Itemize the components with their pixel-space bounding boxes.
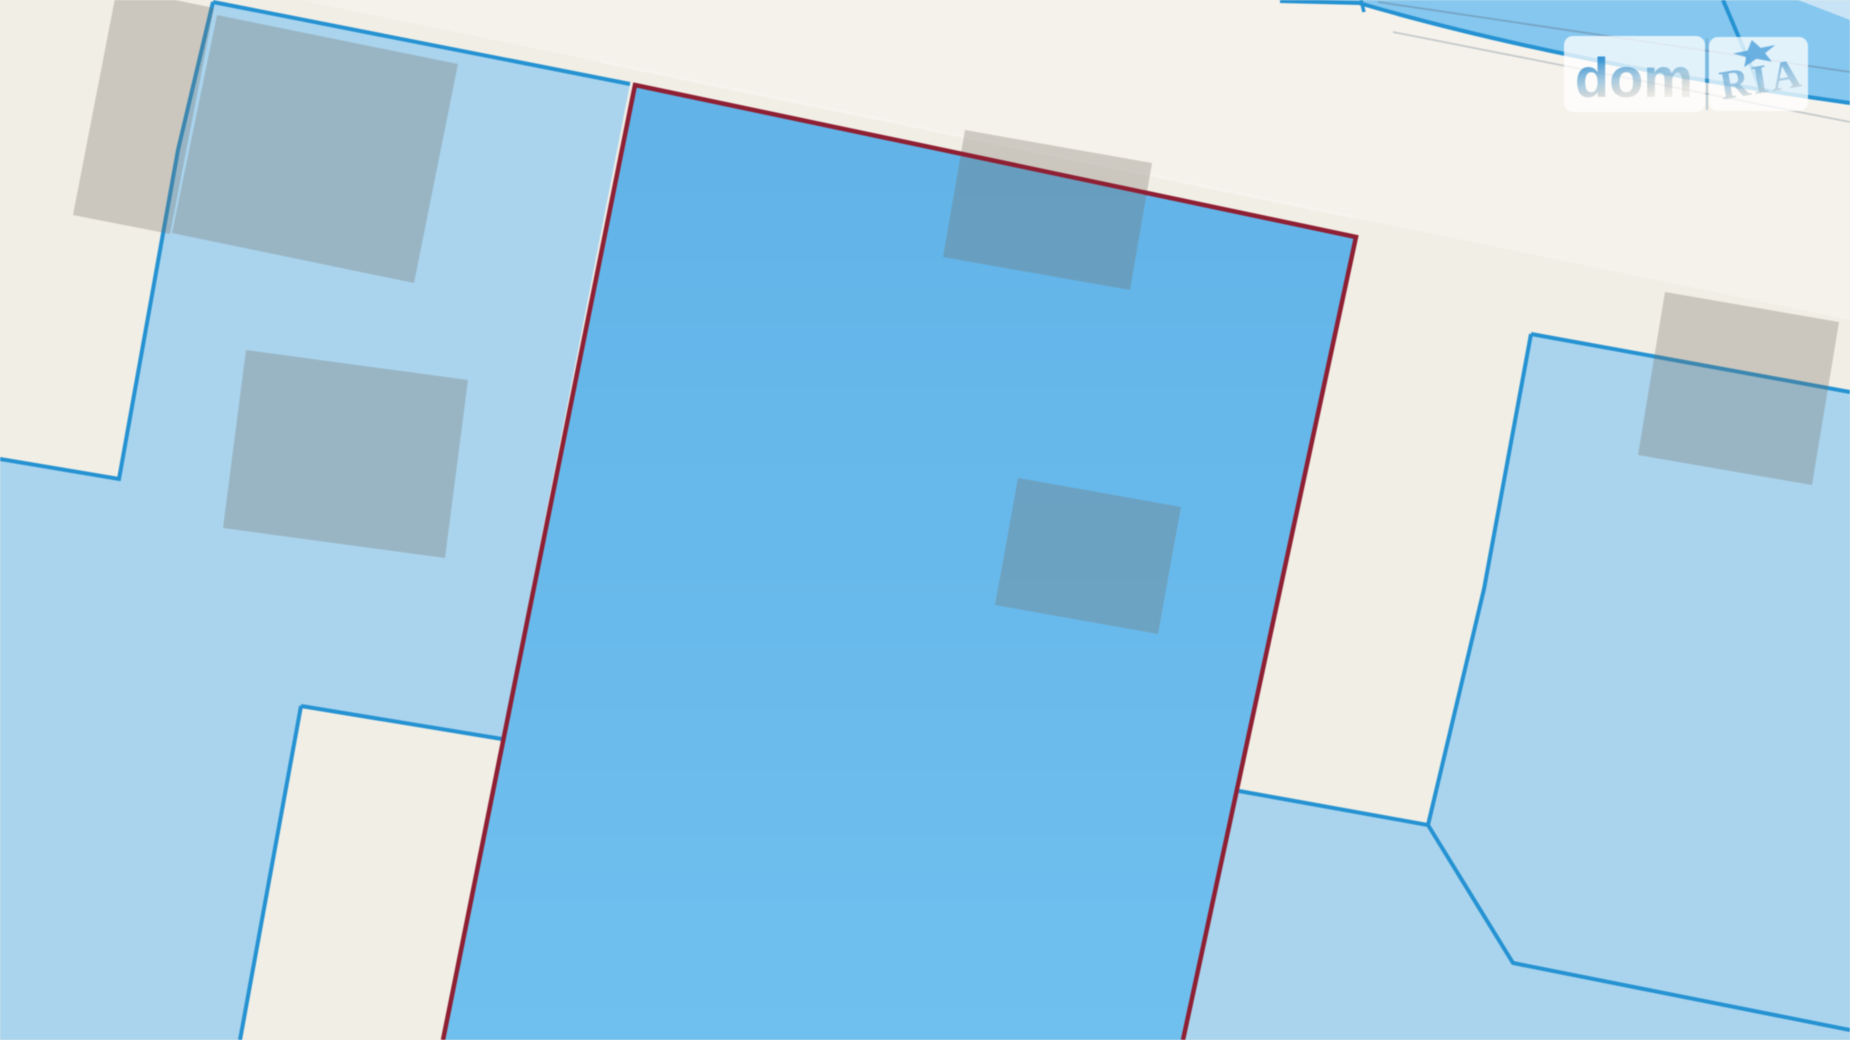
svg-text:dom: dom (1575, 46, 1693, 109)
